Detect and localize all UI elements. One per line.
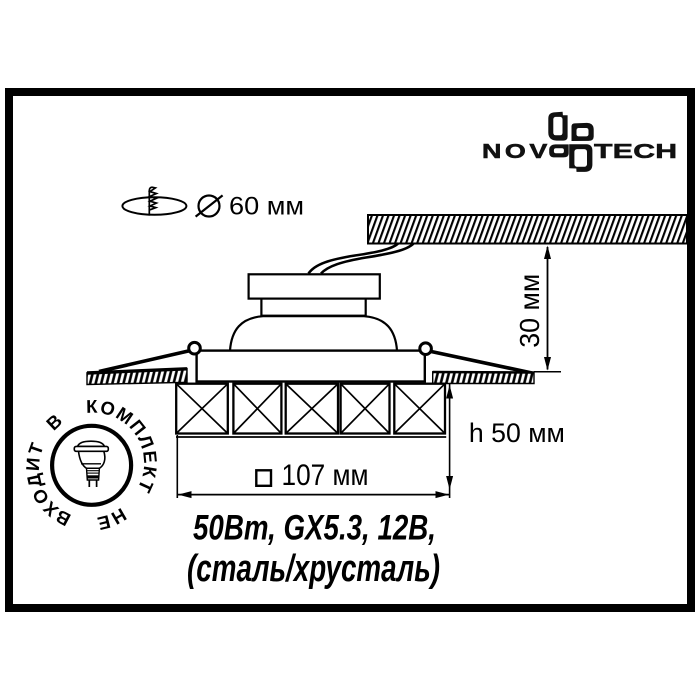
svg-text:h 50 мм: h 50 мм	[469, 418, 565, 448]
svg-text:60 мм: 60 мм	[229, 193, 304, 221]
svg-text:(сталь/хрусталь): (сталь/хрусталь)	[187, 548, 440, 590]
svg-text:107 мм: 107 мм	[282, 459, 369, 492]
svg-text:NOV: NOV	[482, 141, 551, 163]
svg-text:50Вт, GX5.3, 12В,: 50Вт, GX5.3, 12В,	[193, 508, 436, 548]
svg-text:30 мм: 30 мм	[514, 274, 545, 348]
svg-text:TECH: TECH	[594, 141, 677, 163]
